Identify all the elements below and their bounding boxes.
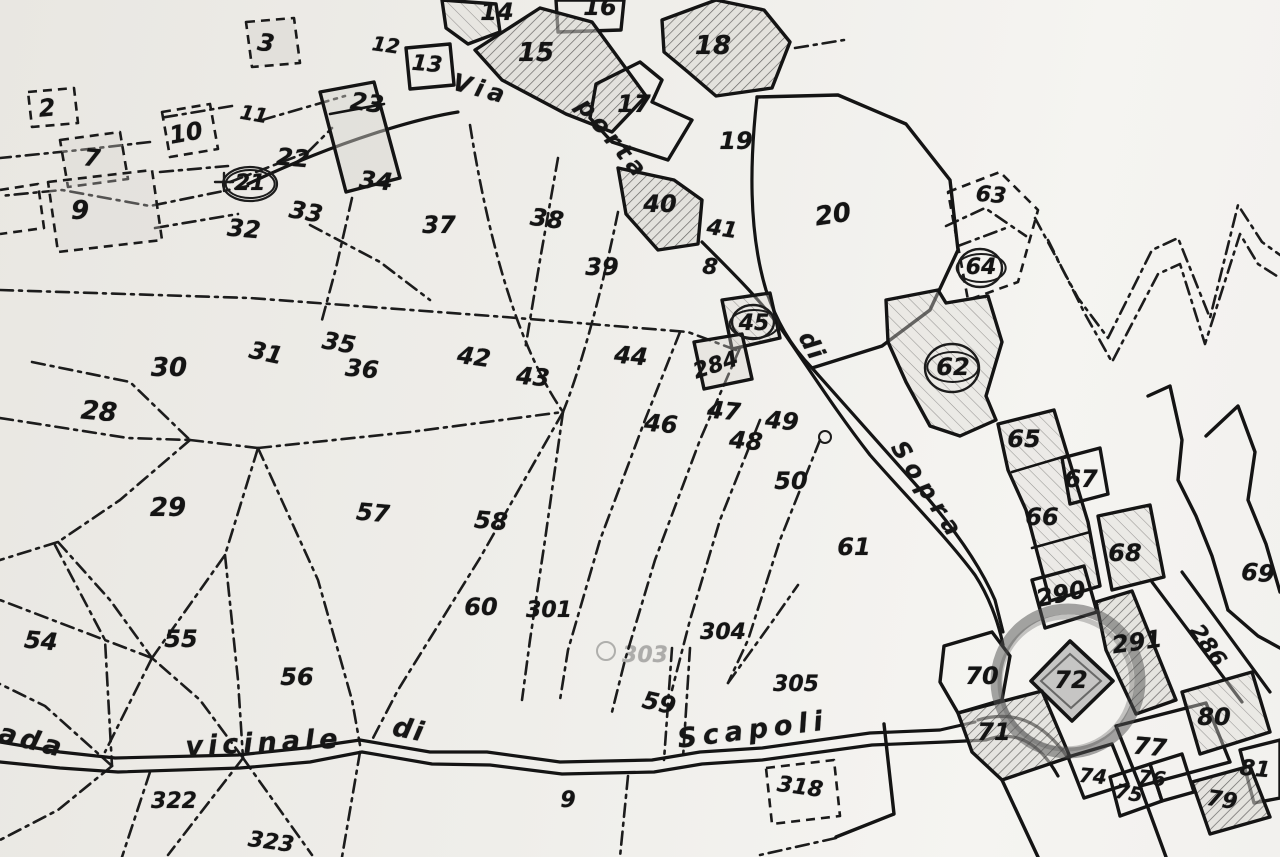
small-ring-mark — [819, 431, 831, 443]
map-line — [683, 648, 690, 758]
map-line — [1206, 406, 1280, 592]
map-line — [612, 348, 740, 712]
map-line — [152, 658, 243, 758]
symbols-layer — [215, 167, 1002, 660]
map-line — [795, 40, 844, 48]
map-line — [0, 766, 112, 840]
map-line — [728, 585, 798, 683]
map-line — [225, 555, 243, 758]
map-line — [152, 448, 258, 658]
map-line — [32, 362, 190, 440]
map-line — [122, 772, 150, 857]
dashed-parcels-layer — [0, 18, 1038, 824]
map-line — [310, 225, 430, 300]
map-line — [442, 0, 500, 44]
map-line — [620, 776, 628, 857]
map-line — [0, 684, 112, 766]
map-line — [0, 440, 190, 560]
map-line — [560, 332, 680, 700]
map-line — [168, 758, 243, 855]
map-line — [946, 208, 1026, 236]
map-line — [258, 448, 360, 745]
map-line — [28, 88, 78, 127]
map-line — [406, 44, 454, 89]
field-boundaries-layer — [0, 40, 1280, 857]
buildings-layer — [320, 0, 1280, 857]
map-linework — [0, 0, 1280, 857]
map-line — [0, 722, 975, 762]
map-line — [243, 758, 312, 855]
map-line — [190, 440, 258, 448]
map-line — [1228, 610, 1280, 648]
map-line — [470, 125, 563, 412]
map-line — [618, 168, 702, 250]
map-line — [160, 166, 228, 172]
map-line — [886, 290, 1002, 436]
map-line — [246, 18, 300, 67]
map-line — [155, 214, 238, 228]
map-line — [0, 600, 152, 658]
map-line — [322, 198, 352, 320]
map-line — [672, 420, 760, 690]
map-line — [728, 440, 820, 683]
map-line — [766, 760, 840, 824]
map-line — [48, 170, 162, 252]
map-line — [55, 545, 112, 766]
map-line — [342, 752, 360, 857]
map-line — [1192, 766, 1270, 834]
map-line — [1098, 505, 1164, 590]
map-line — [694, 334, 752, 389]
map-line — [563, 212, 618, 412]
highlight-group — [996, 609, 1140, 753]
map-line — [105, 658, 152, 752]
map-line — [1182, 672, 1270, 754]
map-line — [836, 724, 894, 837]
map-line — [664, 648, 672, 760]
map-line — [0, 290, 736, 350]
map-line — [1035, 205, 1280, 338]
map-line — [1002, 780, 1038, 857]
map-line — [662, 0, 790, 96]
cadastral-map: ViaportadiSopraadavicinalediScapoli 2379… — [0, 0, 1280, 857]
circle-64 — [958, 249, 1002, 287]
map-line — [760, 838, 836, 855]
map-line — [1048, 234, 1280, 362]
faint-ring-mark — [597, 642, 615, 660]
map-line — [958, 228, 1006, 246]
map-line — [1182, 572, 1270, 692]
map-line — [372, 412, 563, 740]
map-line — [160, 106, 232, 118]
map-line — [320, 82, 400, 192]
map-line — [258, 412, 563, 448]
map-line — [162, 104, 218, 157]
map-line — [0, 418, 190, 440]
map-line — [522, 412, 563, 700]
